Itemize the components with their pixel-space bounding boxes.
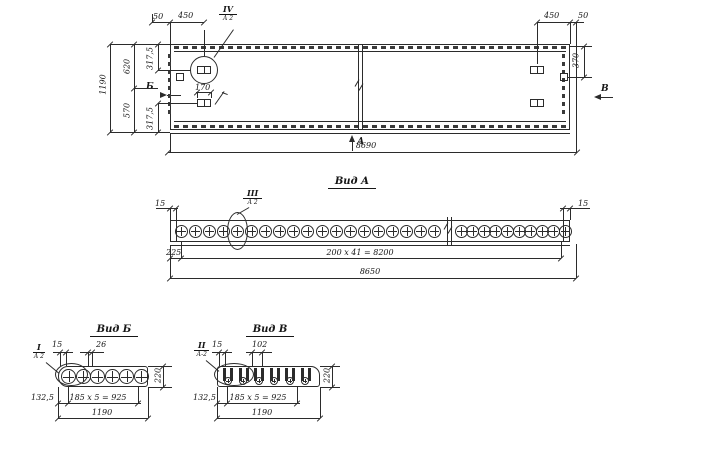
hole-cross bbox=[336, 227, 337, 236]
hole-cross bbox=[98, 371, 99, 382]
view-b-arrow-icon bbox=[160, 92, 167, 98]
hole-cross bbox=[69, 371, 70, 382]
panel-joint bbox=[358, 44, 359, 130]
hole-cross bbox=[223, 227, 224, 236]
line-h bbox=[134, 88, 158, 89]
dim-1190: 1190 bbox=[99, 70, 108, 100]
hole-cross bbox=[565, 227, 566, 236]
serrated-edge bbox=[174, 125, 566, 128]
hole-cross bbox=[496, 227, 497, 236]
hole-cross bbox=[421, 227, 422, 236]
dim-v-185x5: 185 х 5 = 925 bbox=[226, 393, 290, 402]
callout-leader bbox=[237, 207, 250, 215]
line-v bbox=[170, 22, 171, 44]
hole-cross bbox=[393, 227, 394, 236]
detail-callout-iii: III А 2 bbox=[243, 189, 262, 206]
hole-cross bbox=[181, 227, 182, 236]
hole-cross bbox=[519, 227, 520, 236]
line-v bbox=[66, 352, 67, 366]
hole-cross bbox=[209, 227, 210, 236]
view-a-title: Вид А bbox=[328, 176, 376, 189]
callout-circle bbox=[190, 56, 218, 84]
dim-v-15: 15 bbox=[212, 340, 222, 349]
hole-cross bbox=[531, 227, 532, 236]
line-v bbox=[570, 208, 571, 220]
line-h bbox=[110, 44, 170, 45]
line-v bbox=[262, 352, 263, 366]
hole-cross bbox=[290, 379, 291, 383]
line-v bbox=[68, 387, 69, 403]
dim-line bbox=[332, 366, 333, 387]
line-v bbox=[92, 352, 93, 366]
dim-line bbox=[58, 403, 141, 404]
line-v bbox=[181, 242, 182, 258]
dim-line bbox=[168, 152, 577, 153]
lifting-anchor bbox=[537, 99, 538, 107]
panel-outline bbox=[170, 44, 570, 130]
dim-3175-bot: 317,5 bbox=[146, 106, 155, 132]
hole-cross bbox=[83, 371, 84, 382]
dim-line bbox=[217, 403, 300, 404]
line-v bbox=[537, 22, 538, 64]
dim-450-left: 450 bbox=[178, 11, 193, 20]
dim-50-right: 50 bbox=[578, 11, 588, 20]
dim-v-1325: 132,5 bbox=[193, 393, 216, 402]
detail-callout-i: I А 2 bbox=[33, 343, 45, 360]
dim-line bbox=[158, 103, 159, 132]
line-v bbox=[561, 242, 562, 258]
dim-line bbox=[163, 366, 164, 387]
line-v bbox=[148, 387, 149, 418]
line-v bbox=[138, 387, 139, 403]
line-v bbox=[576, 244, 577, 278]
detail-callout-iii-number: III bbox=[243, 189, 262, 199]
hole-cross bbox=[350, 227, 351, 236]
dim-8690: 8690 bbox=[348, 141, 384, 150]
dim-line bbox=[217, 418, 320, 419]
line-v bbox=[252, 352, 253, 366]
hole-cross bbox=[112, 371, 113, 382]
hole-cross bbox=[473, 227, 474, 236]
hole-cross bbox=[554, 227, 555, 236]
line-v bbox=[217, 387, 218, 418]
line-v bbox=[170, 208, 171, 220]
hole-cross bbox=[378, 227, 379, 236]
hole-cross bbox=[141, 371, 142, 382]
line-h bbox=[110, 132, 170, 133]
dim-line bbox=[560, 208, 590, 209]
line-v bbox=[58, 387, 59, 418]
line-v bbox=[227, 387, 228, 403]
detail-callout-iv-sheet: А 2 bbox=[223, 15, 233, 22]
panel-shadow-line bbox=[170, 133, 570, 134]
dim-line bbox=[584, 46, 585, 77]
dim-b-26: 26 bbox=[96, 340, 106, 349]
hole-cross bbox=[252, 227, 253, 236]
dim-v-102: 102 bbox=[252, 340, 267, 349]
dim-620: 620 bbox=[123, 56, 132, 78]
line-h bbox=[320, 387, 340, 388]
dim-line bbox=[110, 44, 111, 132]
line-v bbox=[204, 30, 205, 56]
line-v bbox=[60, 352, 61, 366]
dim-line bbox=[170, 278, 576, 279]
panel-inner-line bbox=[174, 121, 566, 122]
detail-callout-ii: II А-2 bbox=[194, 341, 209, 358]
hole-cross bbox=[266, 227, 267, 236]
hole-cross bbox=[127, 371, 128, 382]
line-v bbox=[219, 352, 220, 366]
hole-cross bbox=[484, 227, 485, 236]
line-h bbox=[148, 387, 172, 388]
line-v bbox=[570, 22, 571, 44]
hole-cross bbox=[435, 227, 436, 236]
hole-cross bbox=[305, 379, 306, 383]
dim-570: 570 bbox=[123, 100, 132, 122]
detail-callout-ii-number: II bbox=[194, 341, 209, 351]
dim-b-15: 15 bbox=[52, 340, 62, 349]
lifting-anchor bbox=[537, 66, 538, 74]
view-b-title: Вид Б bbox=[90, 324, 138, 337]
detail-callout-ii-sheet: А-2 bbox=[197, 351, 207, 358]
dim-450-right: 450 bbox=[544, 11, 559, 20]
line-v bbox=[211, 92, 212, 98]
line-v bbox=[576, 22, 577, 152]
detail-callout-iii-sheet: А 2 bbox=[247, 199, 257, 206]
dim-v-1190: 1190 bbox=[242, 408, 282, 417]
dim-15-left: 15 bbox=[155, 199, 165, 208]
dim-b-1325: 132,5 bbox=[31, 393, 54, 402]
line-h bbox=[158, 70, 191, 71]
hole-cross bbox=[308, 227, 309, 236]
hole-cross bbox=[280, 227, 281, 236]
hole-cross bbox=[542, 227, 543, 236]
hole-cross bbox=[322, 227, 323, 236]
dim-225: 225 bbox=[166, 248, 181, 257]
panel-inner-line bbox=[174, 51, 566, 52]
hole-cross bbox=[407, 227, 408, 236]
hole-cross bbox=[364, 227, 365, 236]
hole-cross bbox=[294, 227, 295, 236]
view-v-title: Вид В bbox=[246, 324, 294, 337]
dim-line bbox=[152, 22, 204, 23]
dim-3175-top: 317,5 bbox=[146, 46, 155, 72]
line-v bbox=[197, 92, 198, 98]
line-v bbox=[176, 208, 177, 220]
dim-tick bbox=[574, 149, 580, 155]
view-a-arrow-shaft bbox=[352, 140, 353, 151]
break-line bbox=[451, 217, 452, 245]
hole-cross bbox=[274, 379, 275, 383]
line-v bbox=[152, 14, 153, 22]
dim-line bbox=[158, 44, 159, 70]
lifting-anchor bbox=[204, 99, 205, 107]
line-h bbox=[320, 366, 340, 367]
hole-cross bbox=[243, 379, 244, 383]
view-arrow-a-label: А bbox=[357, 138, 364, 147]
hole-cross bbox=[259, 379, 260, 383]
dim-200x41: 200 х 41 = 8200 bbox=[300, 248, 420, 257]
line-v bbox=[170, 245, 171, 278]
edge-tab bbox=[176, 73, 184, 81]
line-h bbox=[568, 77, 592, 78]
view-v-arrow-shaft bbox=[599, 97, 613, 98]
serrated-edge bbox=[174, 46, 566, 49]
line-v bbox=[297, 387, 298, 403]
line-h bbox=[570, 46, 592, 47]
line-v bbox=[88, 352, 89, 366]
detail-callout-i-sheet: А 2 bbox=[34, 353, 44, 360]
line-v bbox=[225, 352, 226, 366]
line-v bbox=[170, 133, 171, 152]
panel-joint bbox=[362, 44, 363, 130]
dim-line bbox=[58, 418, 148, 419]
line-h bbox=[148, 366, 172, 367]
drawing-canvas: 50 450 450 50 370 1190 620 570 317,5 317… bbox=[0, 0, 717, 474]
detail-callout-i-number: I bbox=[33, 343, 45, 353]
serrated-edge bbox=[562, 54, 565, 118]
dim-b-185x5: 185 х 5 = 925 bbox=[66, 393, 130, 402]
line-h bbox=[158, 103, 197, 104]
hole-cross bbox=[228, 379, 229, 383]
detail-callout-iv-number: IV bbox=[219, 5, 237, 15]
hole-cross bbox=[237, 227, 238, 236]
dim-tick bbox=[201, 19, 207, 25]
serrated-edge bbox=[168, 54, 171, 118]
view-arrow-v-label: В bbox=[601, 85, 609, 94]
detail-callout-iv: IV А 2 bbox=[219, 5, 237, 22]
hole-cross bbox=[461, 227, 462, 236]
line-v bbox=[320, 387, 321, 418]
edge-tab bbox=[560, 73, 568, 81]
dim-8650: 8650 bbox=[340, 267, 400, 276]
dim-line bbox=[170, 258, 561, 259]
dim-15-right: 15 bbox=[578, 199, 588, 208]
hole-cross bbox=[195, 227, 196, 236]
line-v bbox=[563, 208, 564, 220]
dim-b-1190: 1190 bbox=[82, 408, 122, 417]
hole-cross bbox=[507, 227, 508, 236]
